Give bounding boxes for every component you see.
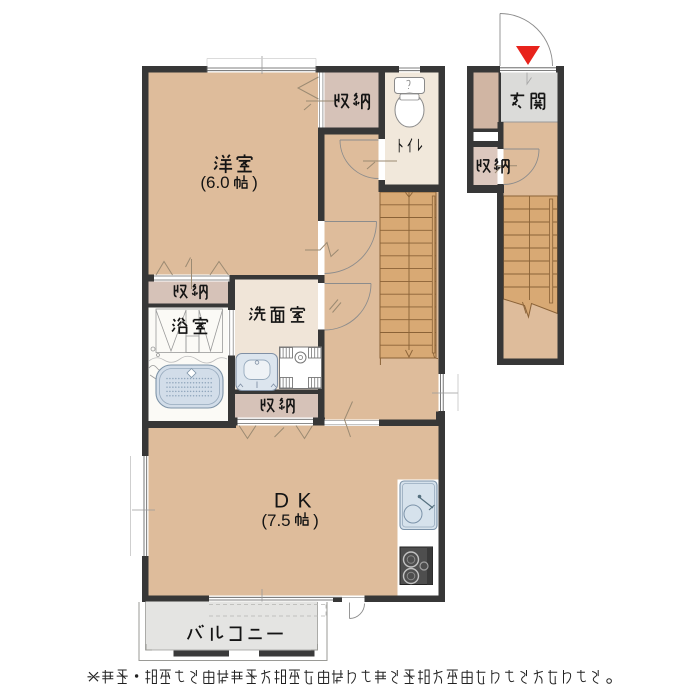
svg-text:): ): [313, 511, 319, 530]
svg-text:K: K: [297, 490, 311, 513]
svg-text:(7.5: (7.5: [261, 511, 290, 530]
svg-text:(6.0: (6.0: [200, 173, 229, 192]
svg-text:D: D: [274, 490, 289, 513]
svg-text:): ): [252, 173, 258, 192]
